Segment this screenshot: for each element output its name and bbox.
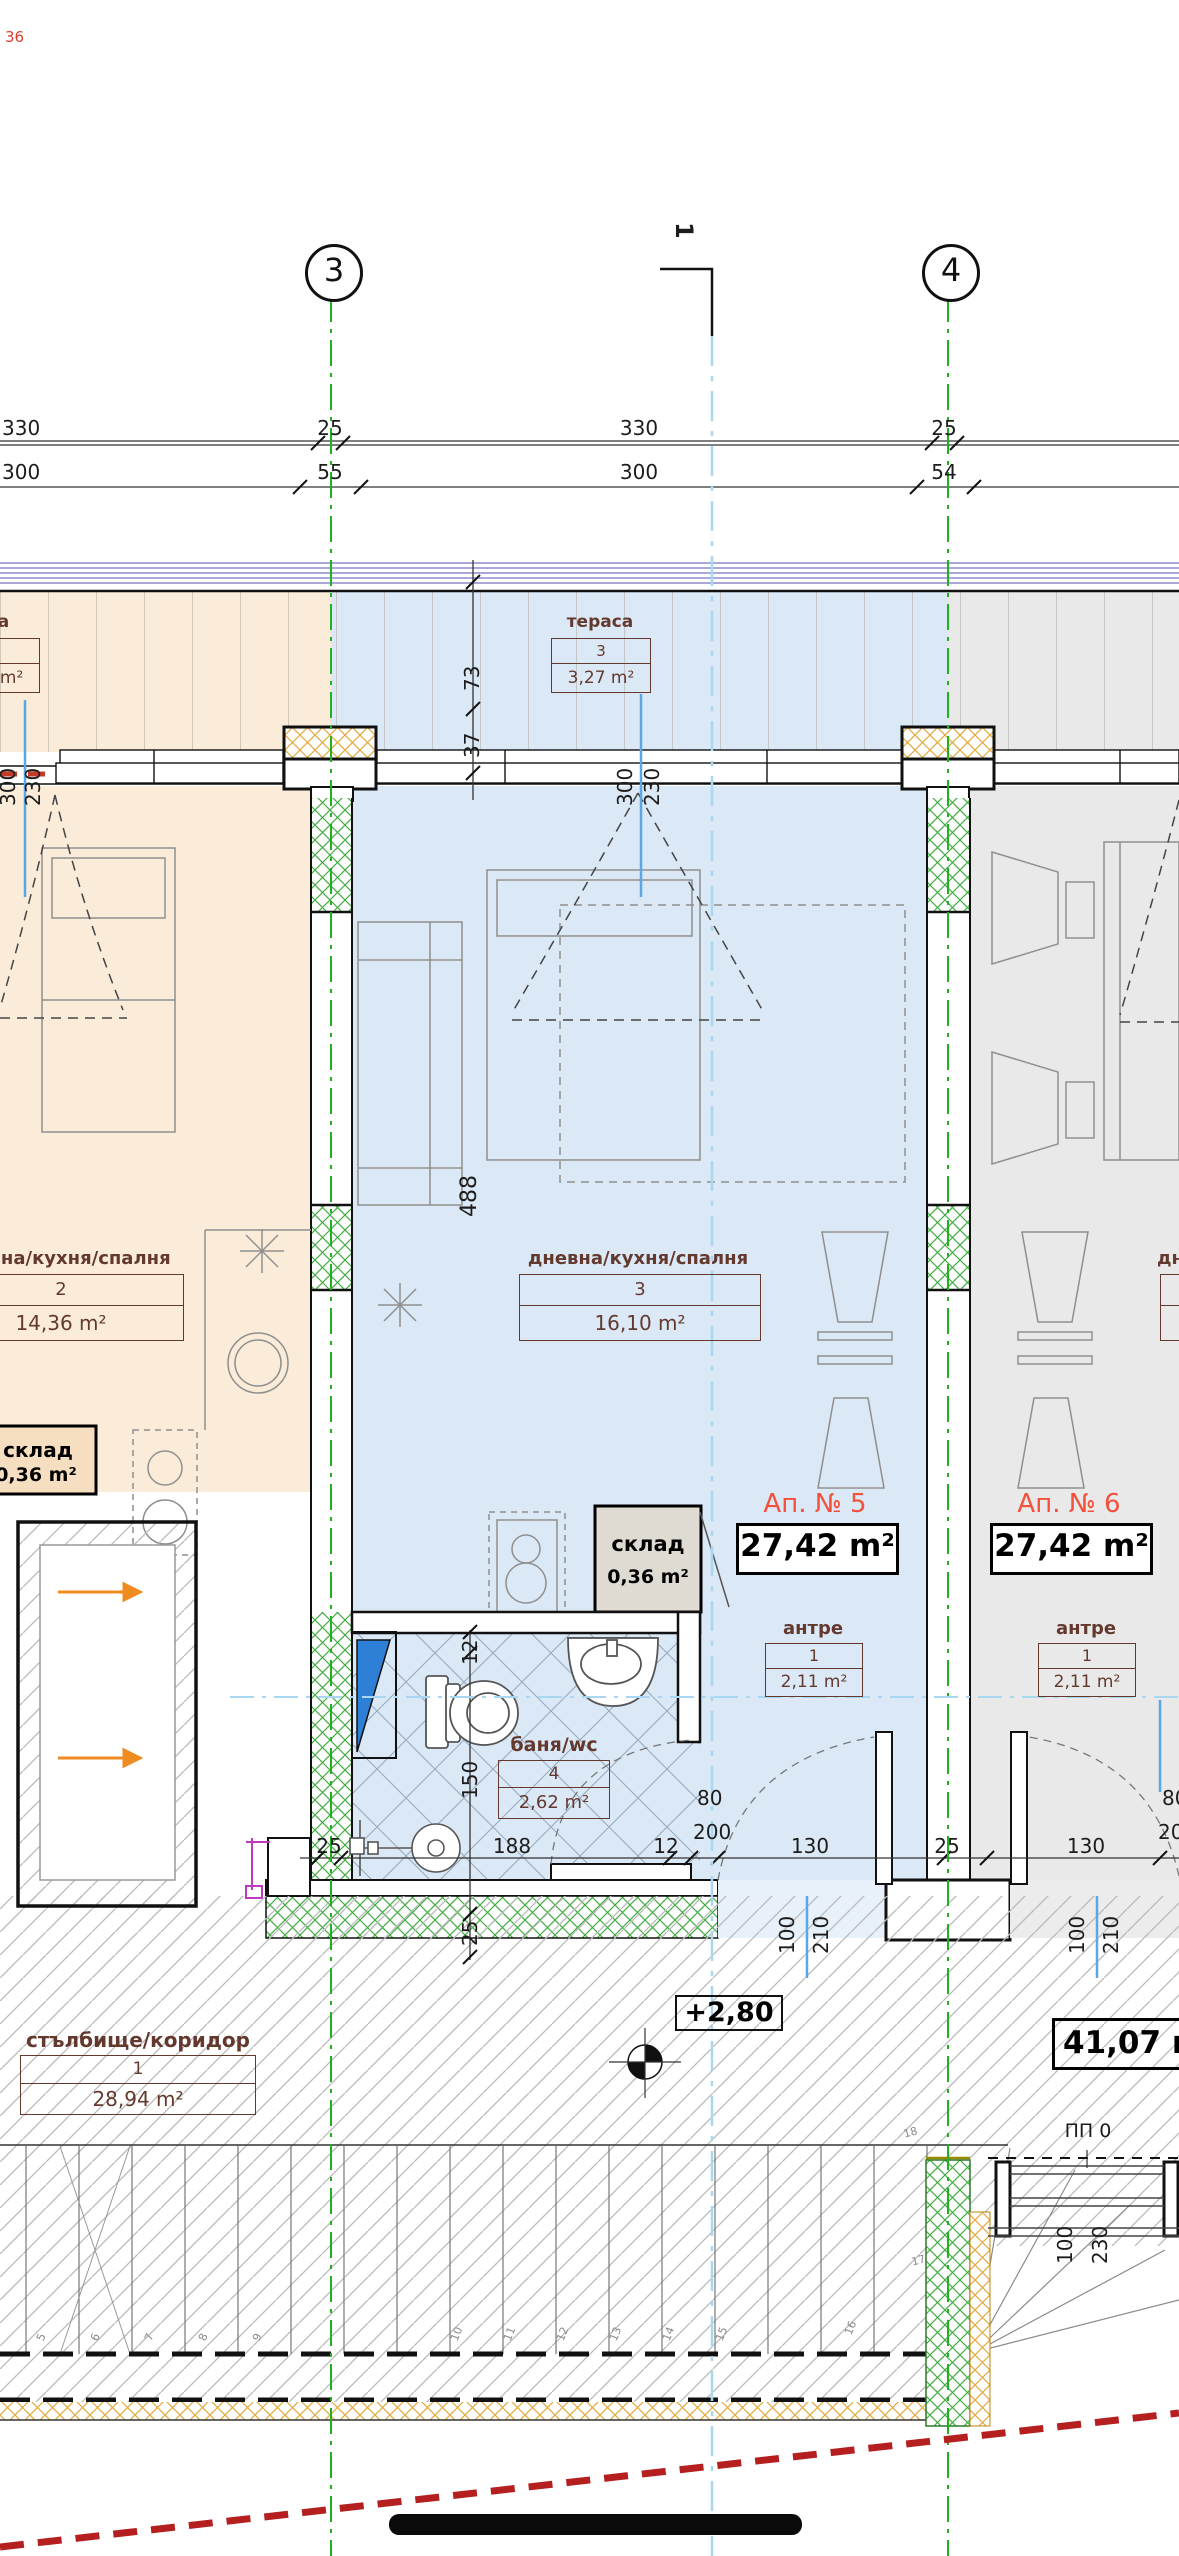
apartment-6-name: Ап. № 6 [991,1489,1147,1519]
corridor-label: 1 28,94 m² [20,2055,256,2115]
pp0-label: ПП 0 [1046,2122,1130,2142]
room-right-label [1160,1274,1179,1341]
terrace-railing [0,563,1179,583]
dim: 25 [460,1921,481,1946]
dim: 150 [460,1761,481,1799]
dim: 300 [615,768,636,806]
dim: 230 [23,768,44,806]
dim: 25 [305,1836,353,1857]
dim: 300 [0,768,19,806]
antre-mid-title: антре [765,1620,861,1639]
section-number: 1 [671,222,696,239]
dim: 130 [786,1836,834,1857]
section-flag [660,269,712,336]
apartment-left-floor [0,786,311,1492]
dim: 25 [920,418,968,439]
home-indicator [389,2514,802,2535]
dim: 73 [462,666,483,691]
corridor-hatch [0,1896,1179,2420]
cooktop-icon [240,1229,284,1273]
terrace-mid-title: тераса [540,614,660,632]
room-mid-label: 3 16,10 m² [519,1274,761,1341]
dim: 100 [777,1916,798,1954]
apartment-5-area: 27,42 m² [736,1523,899,1575]
storage-left-area: 0,36 m² [0,1464,88,1486]
dim: 200 [1158,1822,1179,1843]
dim: 300 [611,462,667,483]
apartment-5-name: Ап. № 5 [737,1489,893,1519]
dim: 488 [458,1175,481,1217]
dim: 330 [2,418,58,439]
dim: 80 [697,1788,722,1809]
floor-plan: 36 3 4 1 330 25 330 25 300 55 300 54 73 … [0,0,1179,2556]
storage-mid-area: 0,36 m² [596,1566,700,1588]
room-right-title: дневна/кухня/спалня [1157,1250,1179,1269]
dim: 100 [1055,2226,1076,2264]
dim: 37 [462,733,483,758]
dim: 210 [1101,1916,1122,1954]
dim: 230 [1090,2226,1111,2264]
apartment-6-area: 27,42 m² [990,1523,1153,1575]
dim: 188 [488,1836,536,1857]
storage-mid-title: склад [596,1532,700,1556]
level-marker-text: +2,80 [675,1995,783,2031]
grid-bubble-4: 4 [922,244,980,302]
dim: 210 [811,1916,832,1954]
bathroom-title: баня/wc [498,1736,610,1756]
corridor-title: стълбище/коридор [20,2030,256,2051]
terrace-left-label: 3 3,27 m² [0,638,40,693]
terrace-mid-label: 3 3,27 m² [551,638,651,693]
cooktop-icon-2 [378,1283,422,1327]
dim: 80 [1162,1788,1179,1809]
corner-note: 36 [5,30,24,46]
facade-windows [0,750,1179,784]
bathroom-label: 4 2,62 m² [498,1760,610,1819]
dim: 54 [920,462,968,483]
storage-mid-box [595,1506,701,1612]
dim: 200 [693,1822,731,1843]
terrace-left-title: тераса [0,614,36,632]
bathroom-door-leaf [551,1864,691,1880]
room-left-label: 2 14,36 m² [0,1274,184,1341]
dim: 300 [2,462,58,483]
dim: 25 [923,1836,971,1857]
elevator-shaft [18,1522,196,1906]
dim: 12 [642,1836,690,1857]
dim: 25 [306,418,354,439]
grid-bubble-3: 3 [305,244,363,302]
total-area-box: 41,07 m² [1052,2018,1179,2070]
room-mid-title: дневна/кухня/спалня [514,1250,762,1269]
dim: 55 [306,462,354,483]
antre-right-title: антре [1038,1620,1134,1639]
dim: 230 [642,768,663,806]
dim: 100 [1067,1916,1088,1954]
storage-left-title: склад [0,1438,88,1462]
apartment-6-floor [970,786,1179,1896]
room-left-title: дневна/кухня/спалня [0,1250,183,1269]
dim: 12 [460,1640,481,1665]
antre-right-label: 1 2,11 m² [1038,1643,1136,1697]
dim: 330 [611,418,667,439]
dim: 130 [1062,1836,1110,1857]
antre-mid-label: 1 2,11 m² [765,1643,863,1697]
